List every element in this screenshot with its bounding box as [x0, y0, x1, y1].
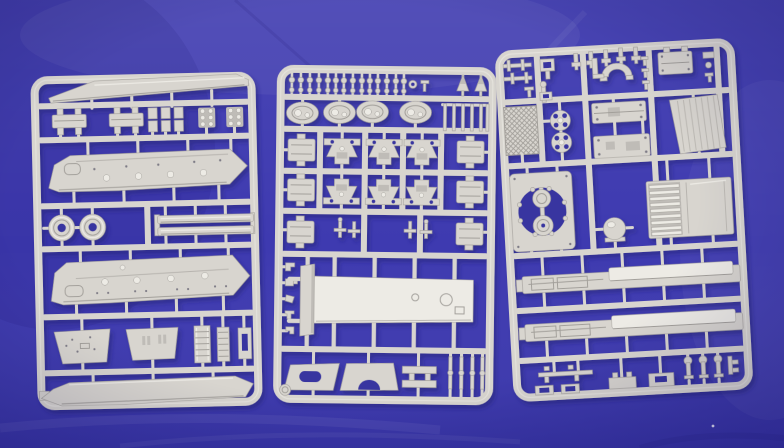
- vignette-overlay: [0, 0, 784, 448]
- sprue-photo-svg: [0, 0, 784, 448]
- photo-of-model-kit-sprues: [0, 0, 784, 448]
